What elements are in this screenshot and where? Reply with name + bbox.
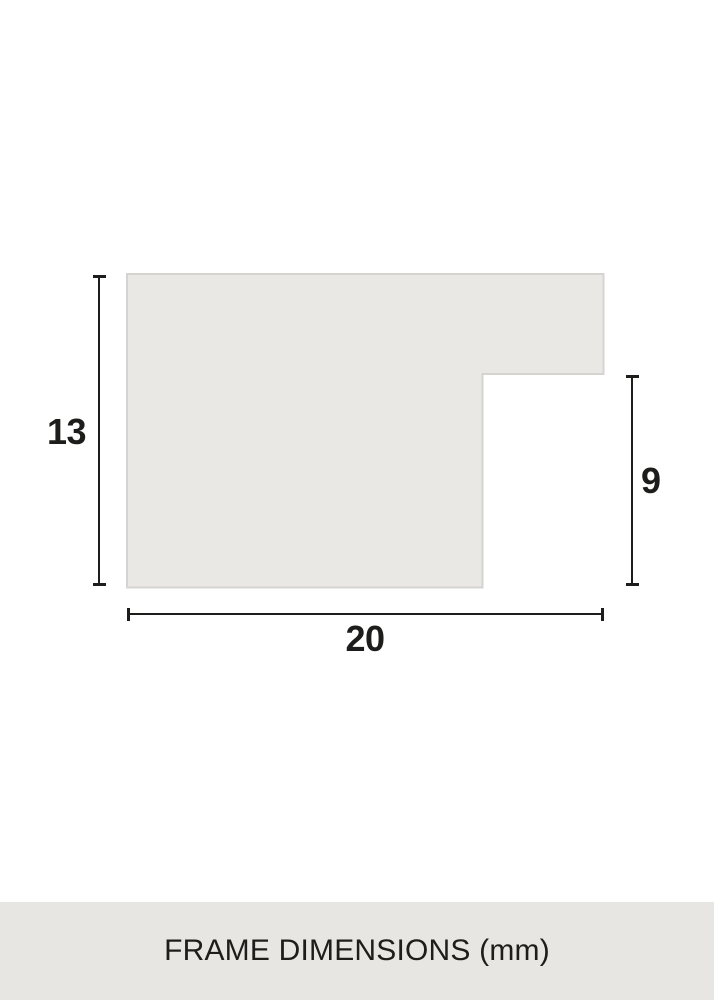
footer-bar: FRAME DIMENSIONS (mm) <box>0 902 714 1000</box>
frame-profile-shape <box>126 273 605 589</box>
dimension-line <box>127 613 604 615</box>
height-dimension-line <box>93 275 106 586</box>
frame-dimension-diagram: 13 9 20 FRAME DIMENSIONS (mm) <box>0 0 714 1000</box>
width-dimension-label: 20 <box>325 621 405 657</box>
dimension-tick <box>626 583 639 586</box>
dimension-line <box>98 275 100 586</box>
rabbet-dimension-label: 9 <box>641 463 661 499</box>
height-dimension-label: 13 <box>20 414 86 450</box>
dimension-tick <box>601 608 604 621</box>
footer-title: FRAME DIMENSIONS (mm) <box>164 934 550 968</box>
dimension-line <box>631 375 633 586</box>
dimension-tick <box>93 583 106 586</box>
rabbet-dimension-line <box>626 375 639 586</box>
frame-profile-polygon <box>127 274 604 588</box>
